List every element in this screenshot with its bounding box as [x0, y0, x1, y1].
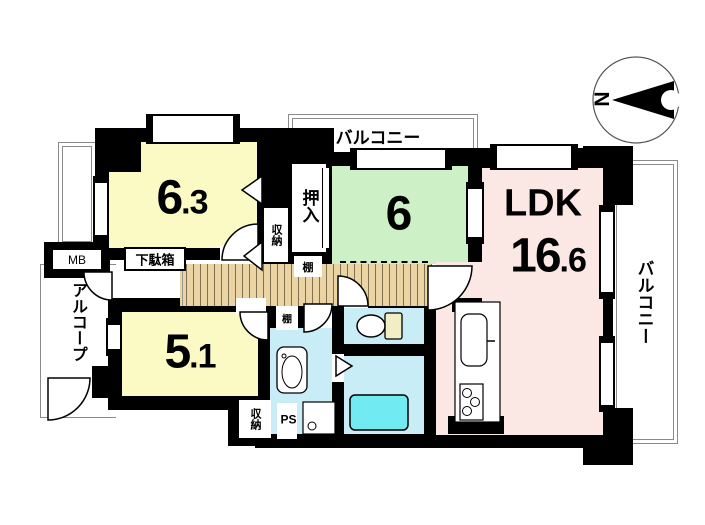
- balcony-top-label: バルコニー: [336, 124, 421, 149]
- wall-toilet-bath: [344, 342, 424, 356]
- open-corridor-strip: [58, 142, 96, 246]
- window-ldk-top: [490, 144, 578, 170]
- room-6-3-size-label: 6.3: [156, 171, 207, 226]
- wall-kitchen-base: [448, 416, 504, 434]
- window-ldk-balcony-1: [599, 205, 615, 299]
- window-room51-left: [106, 318, 122, 356]
- toilet-floor: [344, 308, 424, 344]
- ldk-size-label: 16.6: [510, 229, 586, 284]
- shelf1-label: 棚: [303, 259, 314, 275]
- room6-opening-dashed-line: [340, 261, 428, 263]
- balcony-right-label: バルコニー: [632, 260, 657, 345]
- pipe-space-label: PS: [281, 414, 294, 427]
- window-room6-balcony: [350, 148, 452, 170]
- ldk-name-label: LDK: [504, 183, 582, 226]
- window-room6-ldk: [466, 182, 484, 244]
- wall-kitchen-divider: [483, 364, 496, 422]
- window-room63-left: [93, 176, 109, 242]
- room-5-1-size-label: 5.1: [164, 325, 215, 380]
- meter-box-label: MB: [68, 253, 86, 267]
- bathroom-floor: [344, 356, 424, 434]
- compass-north-label: N: [591, 91, 615, 106]
- room-6-size-label: 6: [386, 187, 411, 242]
- doorway-room51: [236, 298, 266, 314]
- shoe-cabinet-label: 下駄箱: [135, 250, 174, 269]
- entrance-step-line: [182, 266, 183, 306]
- wall-wet-mid: [332, 296, 344, 448]
- oshiire-sliding-door: [322, 168, 330, 248]
- storage-51-label: 収納: [247, 408, 263, 430]
- wall-kitchen-cap: [452, 298, 482, 312]
- floor-plan: 6.3 6 5.1 LDK 16.6 バルコニー バルコニー 押入 収納 棚 棚…: [0, 0, 705, 525]
- doorway-room63: [220, 246, 262, 264]
- wall-wet-right: [424, 306, 436, 448]
- window-ldk-balcony-2: [599, 336, 615, 412]
- shelf2-label: 棚: [282, 311, 292, 326]
- compass-arrow-notch: [661, 90, 681, 110]
- compass-arrow-icon: [612, 81, 674, 119]
- ldk-floor-south: [436, 262, 603, 435]
- window-room63-top: [146, 114, 240, 144]
- storage-63-label: 収納: [268, 224, 284, 246]
- wall-room63-corner-notch: [95, 128, 141, 172]
- oshiire-label: 押入: [297, 189, 322, 223]
- alcove-label: アルコープ: [65, 282, 89, 362]
- wall-alcove-pillar: [92, 366, 112, 398]
